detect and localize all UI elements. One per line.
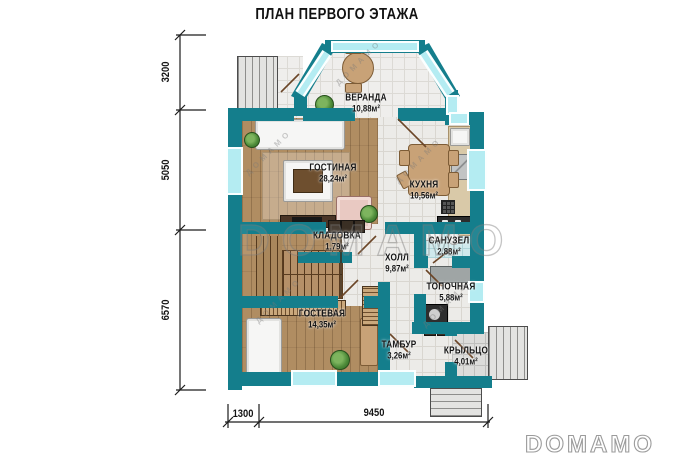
room-label-living: ГОСТИНАЯ 28,24м² (309, 164, 356, 185)
dim-tick (223, 417, 233, 427)
room-area: 14,35м² (299, 320, 345, 330)
plant-icon (315, 95, 334, 114)
exterior-entry-steps (237, 56, 278, 110)
room-area: 10,88м² (345, 104, 386, 114)
veranda-chair (345, 44, 362, 54)
watermark-center: DOMAMO (238, 216, 515, 266)
floor-entry-landing (275, 56, 303, 108)
room-area: 10,56м² (410, 191, 439, 201)
dining-chair (448, 150, 459, 166)
fridge (450, 128, 470, 146)
watermark-corner: DOMAMO (525, 431, 655, 459)
dim-label-9450: 9450 (364, 407, 385, 419)
room-name: ВЕРАНДА (345, 94, 386, 105)
room-name: ТАМБУР (382, 341, 417, 352)
hall-rack (362, 286, 380, 326)
floor-plan-page: ПЛАН ПЕРВОГО ЭТАЖА (0, 0, 674, 470)
room-label-guest: ГОСТЕВАЯ 14,35м² (299, 310, 345, 331)
oven-grill (441, 200, 455, 214)
room-name: КРЫЛЬЦО (444, 347, 488, 358)
page-title: ПЛАН ПЕРВОГО ЭТАЖА (255, 6, 418, 24)
dim-label-1300: 1300 (233, 408, 254, 420)
plant-icon (244, 132, 260, 148)
porch-steps-bottom (430, 388, 482, 417)
dim-label-3200: 3200 (160, 62, 172, 83)
veranda-chair (345, 83, 362, 93)
dim-tick (175, 105, 185, 115)
dim-label-6570: 6570 (160, 300, 172, 321)
guest-sofa (246, 318, 282, 376)
dim-tick (175, 385, 185, 395)
plant-icon (330, 350, 350, 370)
room-label-tambour: ТАМБУР 3,26м² (382, 341, 417, 362)
room-label-veranda: ВЕРАНДА 10,88м² (345, 94, 386, 115)
dim-tick (254, 417, 264, 427)
dim-label-5050: 5050 (160, 160, 172, 181)
room-area: 28,24м² (309, 174, 356, 184)
room-name: ГОСТЕВАЯ (299, 310, 345, 321)
dim-tick (175, 30, 185, 40)
dim-tick (483, 417, 493, 427)
room-name: КУХНЯ (410, 181, 439, 192)
dining-chair (448, 172, 459, 188)
appliance (424, 328, 436, 336)
appliance (437, 328, 449, 336)
dim-tick (175, 225, 185, 235)
room-label-kitchen: КУХНЯ 10,56м² (410, 181, 439, 202)
room-area: 3,26м² (382, 351, 417, 361)
room-name: ГОСТИНАЯ (309, 164, 356, 175)
porch-steps-right (488, 326, 528, 380)
room-area: 4,01м² (444, 357, 488, 367)
room-label-porch: КРЫЛЬЦО 4,01м² (444, 347, 488, 368)
